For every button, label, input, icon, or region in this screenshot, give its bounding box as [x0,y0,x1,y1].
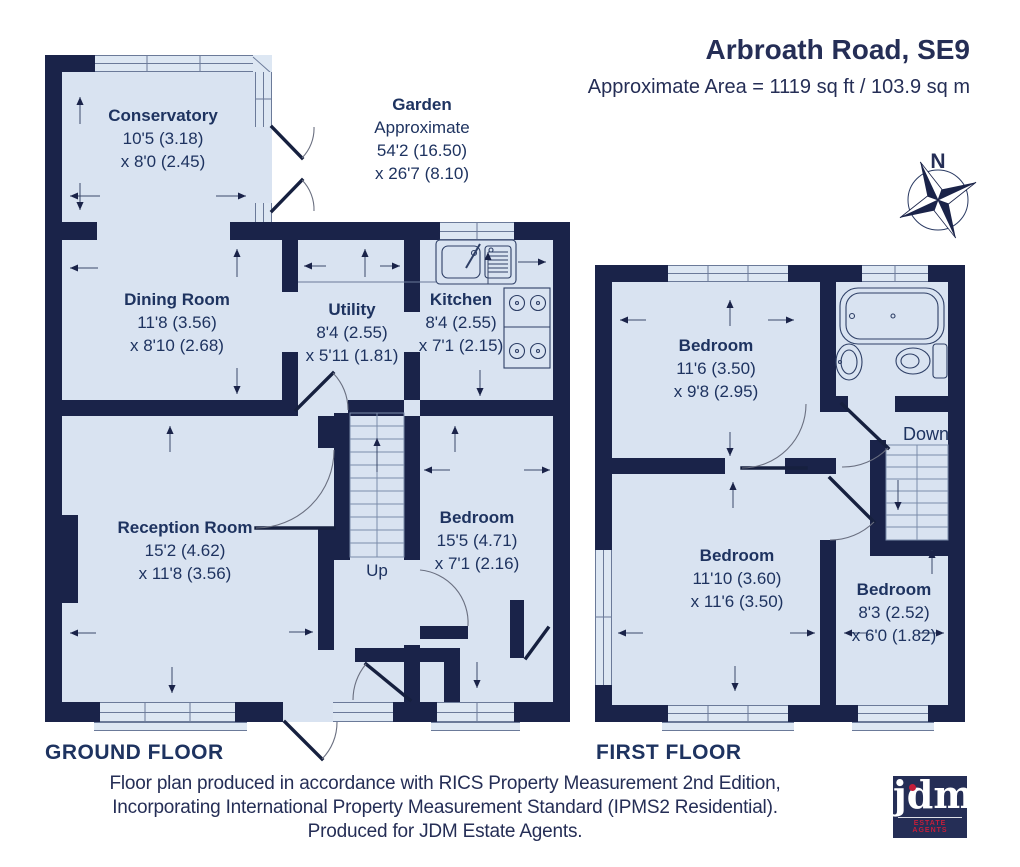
room-dim: 11'8 (3.56) [124,311,230,334]
room-label-dining-room: Dining Room 11'8 (3.56) x 8'10 (2.68) [124,288,230,357]
page-title: Arbroath Road, SE9 [706,34,970,66]
first-floor-title: FIRST FLOOR [596,741,742,765]
footer-line-2: Incorporating International Property Mea… [10,796,880,820]
room-dim: x 11'6 (3.50) [691,590,784,613]
stairs-down-label: Down [903,424,949,445]
room-name: Reception Room [117,516,252,539]
room-name: Kitchen [419,288,504,311]
room-label-conservatory: Conservatory 10'5 (3.18) x 8'0 (2.45) [108,104,218,173]
room-name: Garden [374,93,469,116]
room-dim: 54'2 (16.50) [374,139,469,162]
room-label-utility: Utility 8'4 (2.55) x 5'11 (1.81) [306,298,399,367]
floor-plan-page: Arbroath Road, SE9 Approximate Area = 11… [0,0,1020,867]
room-dim: x 6'0 (1.82) [852,624,937,647]
room-dim: 15'5 (4.71) [435,529,520,552]
room-label-garden: Garden Approximate 54'2 (16.50) x 26'7 (… [374,93,469,185]
room-label-reception-room: Reception Room 15'2 (4.62) x 11'8 (3.56) [117,516,252,585]
room-name: Bedroom [674,334,759,357]
room-dim: 11'10 (3.60) [691,567,784,590]
room-name: Conservatory [108,104,218,127]
room-dim: x 9'8 (2.95) [674,380,759,403]
room-dim: x 5'11 (1.81) [306,344,399,367]
stairs-up-label: Up [366,561,388,581]
room-label-bedroom-front: Bedroom 11'6 (3.50) x 9'8 (2.95) [674,334,759,403]
room-dim: 8'3 (2.52) [852,601,937,624]
jdm-logo-tagline: ESTATE AGENTS [898,817,962,834]
room-dim: 8'4 (2.55) [419,311,504,334]
room-dim: x 7'1 (2.15) [419,334,504,357]
room-dim: x 8'10 (2.68) [124,334,230,357]
room-name: Bedroom [435,506,520,529]
room-label-kitchen: Kitchen 8'4 (2.55) x 7'1 (2.15) [419,288,504,357]
room-label-bedroom-rear: Bedroom 11'10 (3.60) x 11'6 (3.50) [691,544,784,613]
room-note: Approximate [374,116,469,139]
room-dim: 15'2 (4.62) [117,539,252,562]
footer-line-1: Floor plan produced in accordance with R… [10,772,880,796]
room-dim: x 26'7 (8.10) [374,162,469,185]
room-dim: 8'4 (2.55) [306,321,399,344]
room-dim: x 8'0 (2.45) [108,150,218,173]
room-name: Dining Room [124,288,230,311]
room-dim: x 11'8 (3.56) [117,562,252,585]
jdm-logo: jdm ESTATE AGENTS [893,776,967,838]
room-dim: 10'5 (3.18) [108,127,218,150]
room-name: Bedroom [691,544,784,567]
room-dim: x 7'1 (2.16) [435,552,520,575]
jdm-logo-red-dot [909,784,916,791]
room-label-bedroom-small: Bedroom 8'3 (2.52) x 6'0 (1.82) [852,578,937,647]
room-name: Utility [306,298,399,321]
room-name: Bedroom [852,578,937,601]
compass-north-label: N [930,150,945,174]
first-floor-footprint [595,265,965,722]
jdm-logo-text: jdm [893,773,967,817]
footer-line-3: Produced for JDM Estate Agents. [10,820,880,844]
room-dim: 11'6 (3.50) [674,357,759,380]
room-label-bedroom-ground: Bedroom 15'5 (4.71) x 7'1 (2.16) [435,506,520,575]
ground-floor-title: GROUND FLOOR [45,741,224,765]
page-subtitle: Approximate Area = 1119 sq ft / 103.9 sq… [588,76,970,99]
